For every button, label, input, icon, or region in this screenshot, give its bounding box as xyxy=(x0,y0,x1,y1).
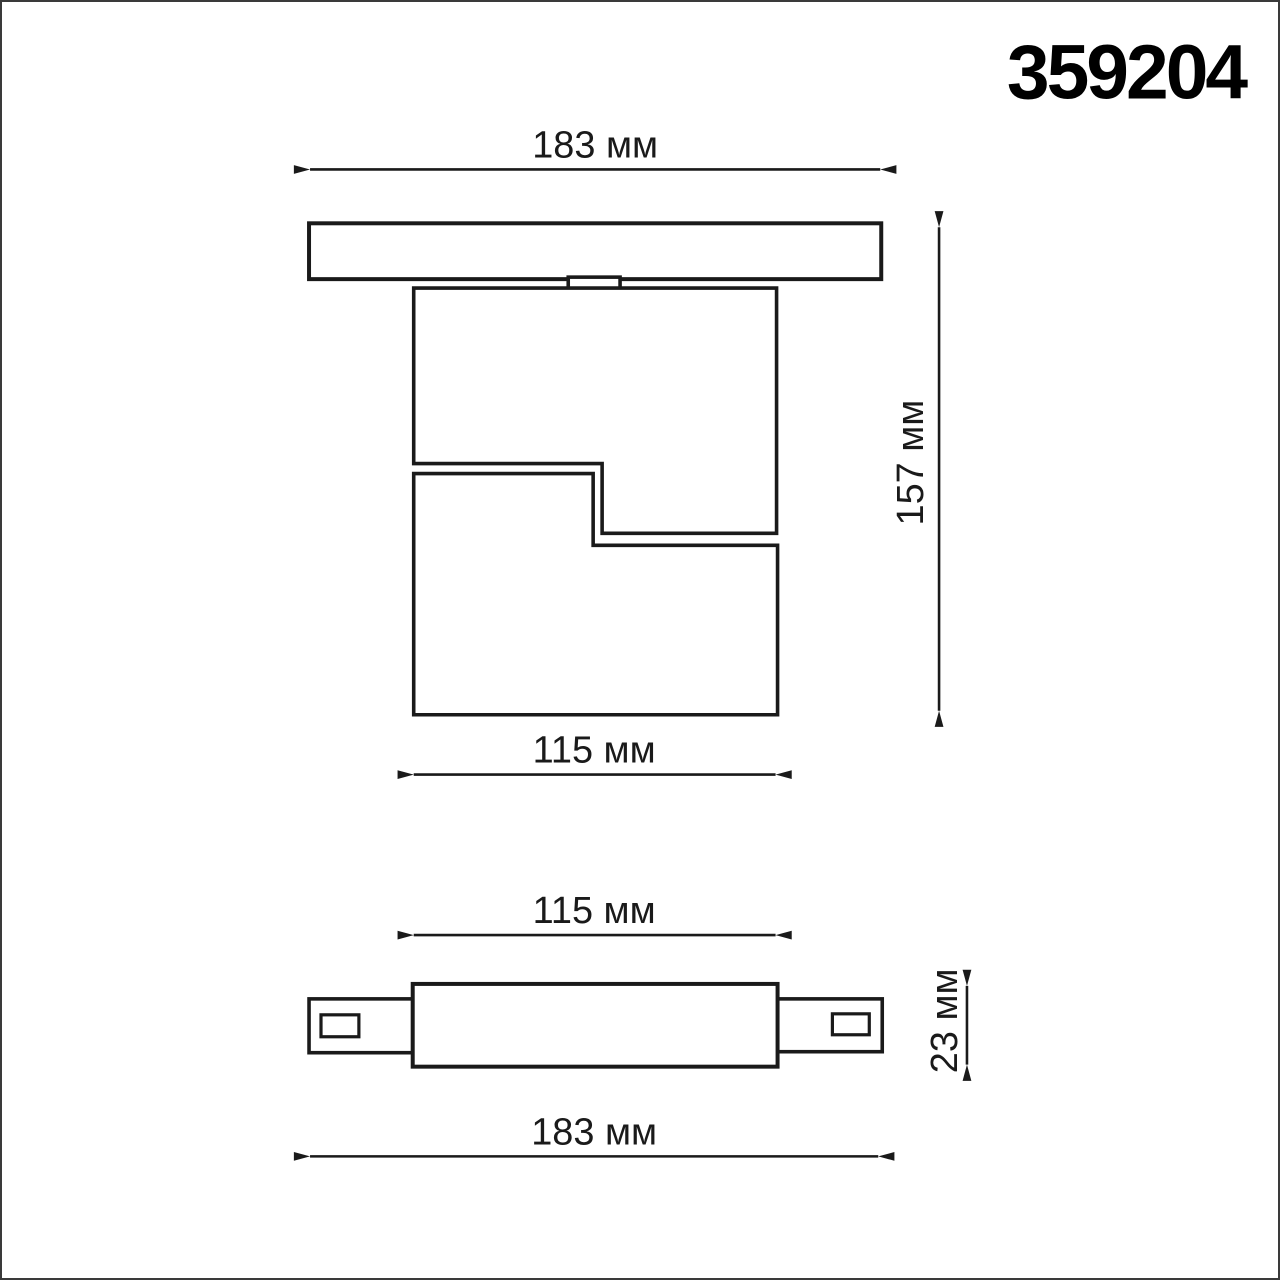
dim-front-body-width: 115 мм xyxy=(414,730,776,775)
dim-front-track-width-label: 183 мм xyxy=(532,125,658,167)
dim-side-track-width: 183 мм xyxy=(310,1111,878,1156)
track-bar-front xyxy=(309,223,881,279)
technical-drawing: 359204 183 мм 157 мм 115 мм xyxy=(2,2,1278,1278)
front-view: 183 мм 157 мм 115 мм xyxy=(309,125,939,775)
dim-front-total-height-label: 157 мм xyxy=(890,400,932,526)
dim-side-body-width-label: 115 мм xyxy=(533,890,656,932)
side-view: 115 мм 23 мм 183 мм xyxy=(309,890,967,1156)
track-left-slot xyxy=(321,1015,359,1037)
dim-side-track-width-label: 183 мм xyxy=(531,1111,657,1153)
dim-front-total-height: 157 мм xyxy=(890,227,939,710)
dim-side-track-height: 23 мм xyxy=(924,968,967,1073)
track-body-side xyxy=(413,984,778,1067)
dim-front-body-width-label: 115 мм xyxy=(533,730,656,772)
track-right-slot xyxy=(832,1014,869,1035)
product-code: 359204 xyxy=(1007,31,1248,116)
dim-front-track-width: 183 мм xyxy=(310,125,880,170)
dim-side-track-height-label: 23 мм xyxy=(924,968,966,1073)
dim-side-body-width: 115 мм xyxy=(414,890,776,935)
technical-drawing-page: 359204 183 мм 157 мм 115 мм xyxy=(0,0,1280,1280)
